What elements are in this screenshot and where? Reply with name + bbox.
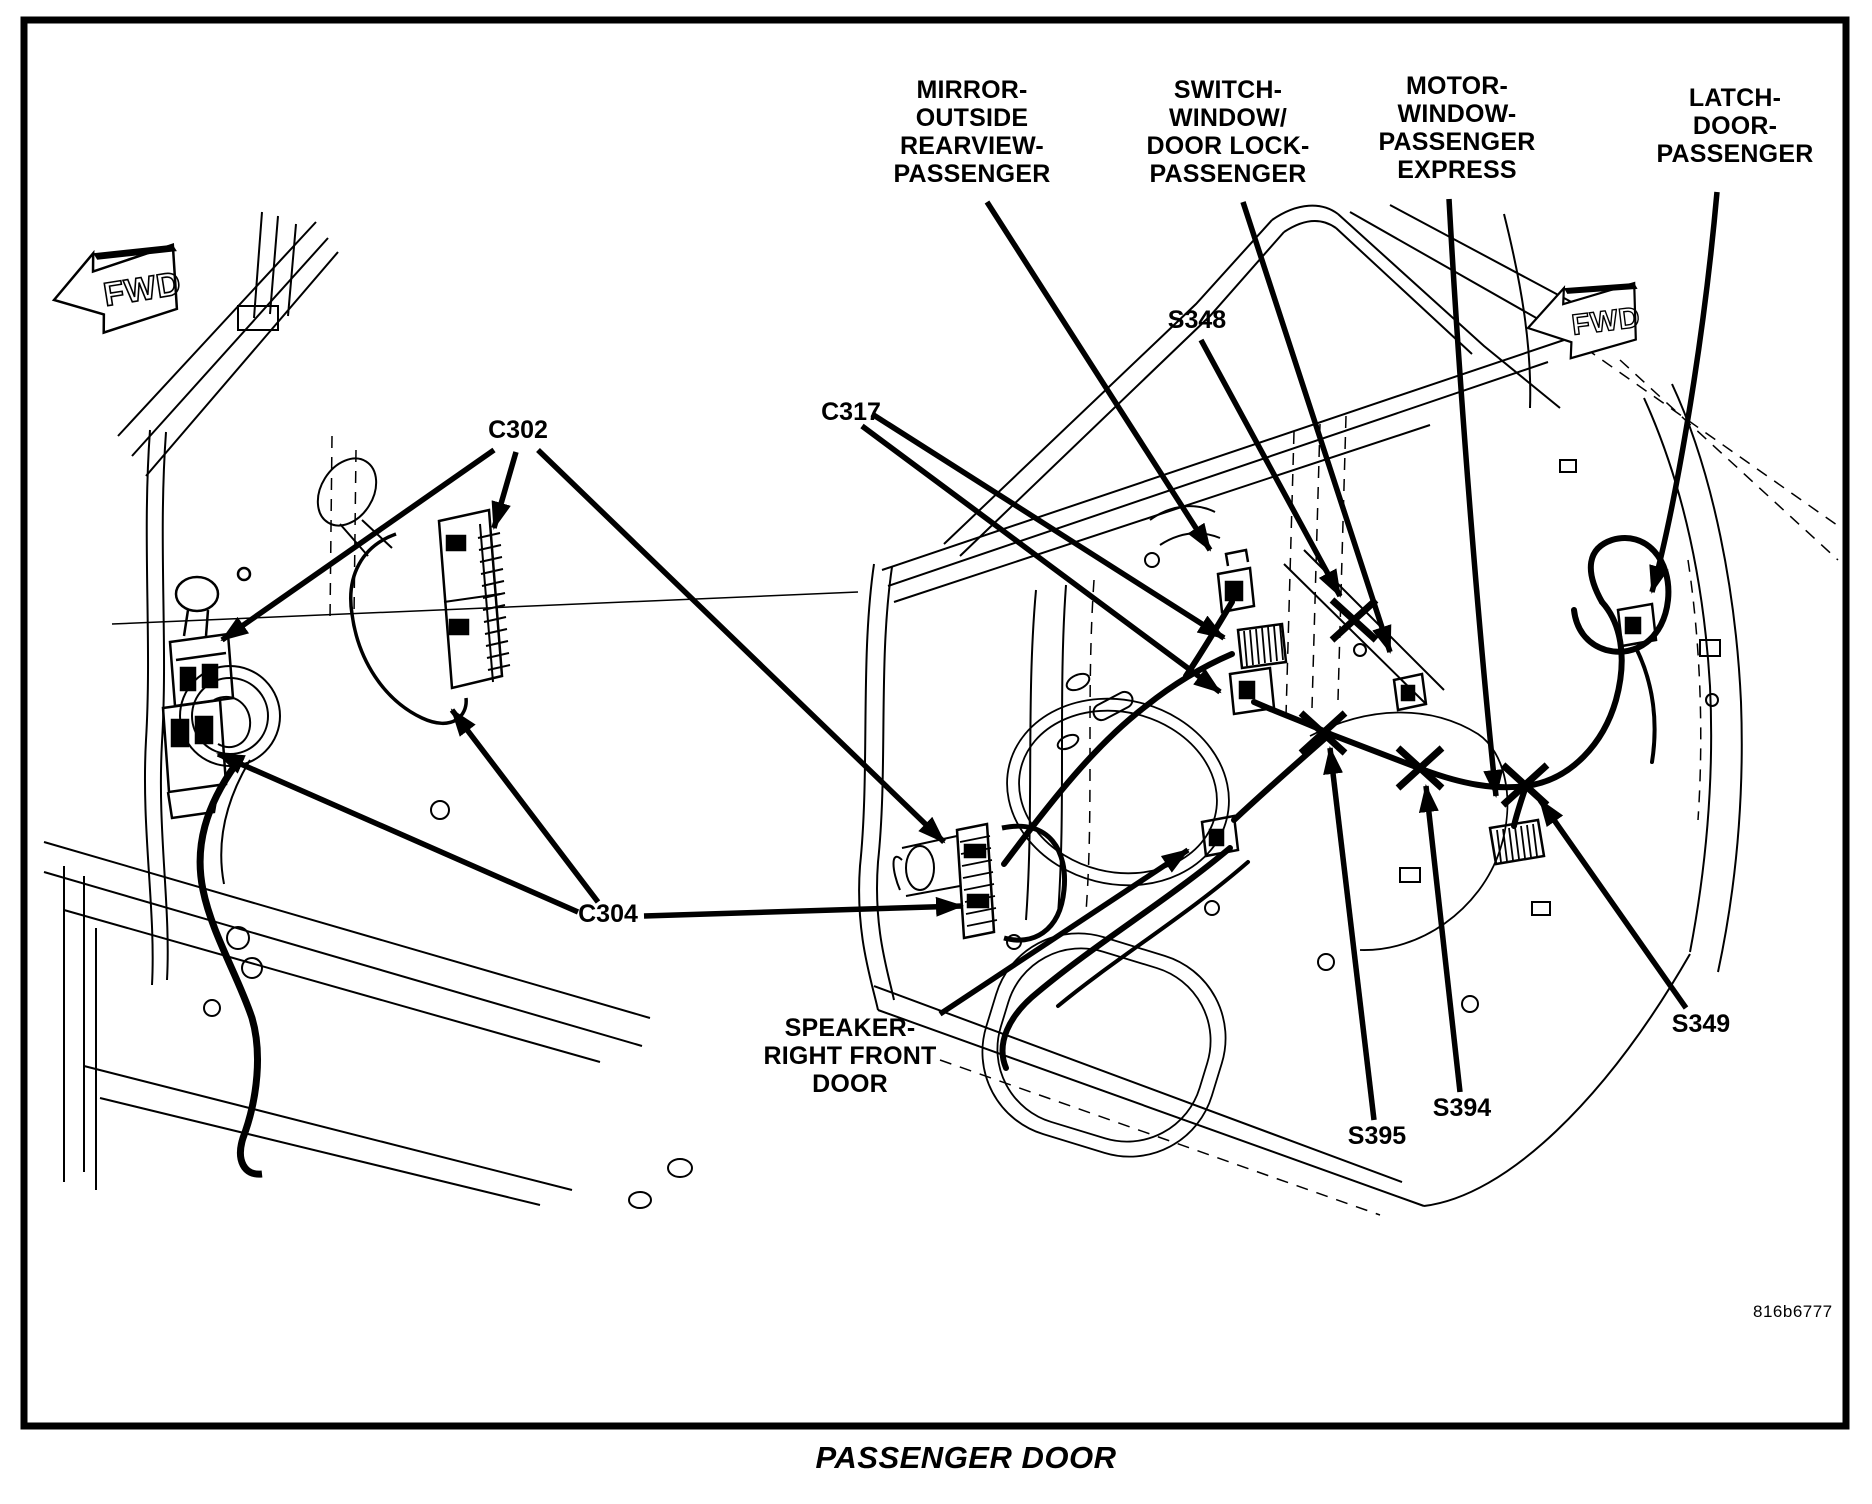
harness-speaker-branch — [1234, 734, 1330, 820]
boot-cone — [306, 448, 388, 537]
hole — [242, 958, 262, 978]
callout-line: PASSENGER — [1379, 128, 1536, 156]
leader-latch — [1652, 192, 1717, 592]
leader-c302-b — [494, 452, 516, 528]
hole — [629, 1192, 651, 1208]
pillar-line — [254, 212, 296, 318]
callout-line: PASSENGER — [1146, 160, 1309, 188]
leader-c302-c — [538, 450, 944, 842]
hole — [431, 801, 449, 819]
door-rear-edge — [1672, 384, 1742, 972]
bolt — [1064, 671, 1092, 694]
callout-line: MIRROR- — [894, 76, 1051, 104]
hole — [668, 1159, 692, 1177]
connector-label-c302: C302 — [488, 416, 548, 445]
hidden-seam — [1688, 560, 1701, 820]
pin-slot — [1240, 682, 1254, 698]
callout-latch: LATCH- DOOR- PASSENGER — [1657, 84, 1814, 168]
connector-label-c304: C304 — [578, 900, 638, 929]
harness-trunk — [1254, 602, 1622, 787]
door-bottom-edge — [874, 986, 1424, 1206]
bolt — [1055, 732, 1080, 752]
keyhole — [176, 577, 218, 611]
callout-switch: SWITCH- WINDOW/ DOOR LOCK- PASSENGER — [1146, 76, 1309, 188]
pin-slot — [1402, 686, 1414, 700]
pin-slot — [1210, 830, 1223, 845]
hole — [1354, 644, 1366, 656]
splice-x-s395 — [1301, 713, 1345, 753]
hidden-seam — [1568, 336, 1844, 560]
wire-boot — [1002, 826, 1065, 940]
connector-label-c317: C317 — [821, 398, 881, 427]
leader-s394 — [1426, 786, 1460, 1092]
leader-motor — [1449, 199, 1496, 796]
hole — [1318, 954, 1334, 970]
callout-motor: MOTOR- WINDOW- PASSENGER EXPRESS — [1379, 72, 1536, 184]
callout-line: WINDOW/ — [1146, 104, 1309, 132]
hidden-seam — [1286, 416, 1346, 716]
callout-line: SPEAKER- — [763, 1014, 936, 1042]
callout-speaker: SPEAKER- RIGHT FRONT DOOR — [763, 1014, 936, 1098]
pin-slot — [1226, 582, 1242, 600]
hole — [1462, 996, 1478, 1012]
fwd-arrow-right: FWD — [1524, 279, 1645, 363]
leader-s395 — [1330, 748, 1374, 1120]
terminal-teeth — [1244, 625, 1283, 666]
access-opening — [1002, 690, 1235, 894]
hole — [1205, 901, 1219, 915]
leader-c304-b — [452, 710, 598, 902]
bracket — [238, 306, 278, 330]
fwd-arrow-left: FWD — [48, 240, 188, 339]
wiring-diagram-art: FWD FWD — [0, 0, 1872, 1504]
harness-lower-run — [1003, 848, 1230, 1068]
screw — [238, 568, 250, 580]
inner-reinforcement — [1026, 585, 1066, 920]
leader-c304-c — [644, 906, 962, 916]
keyhole-stem — [184, 610, 208, 636]
figure-title: PASSENGER DOOR — [816, 1440, 1117, 1476]
callout-line: REARVIEW- — [894, 132, 1051, 160]
clips — [1400, 460, 1720, 915]
leader-c317-a — [872, 414, 1224, 638]
splice-x-s394 — [1398, 748, 1442, 788]
leader-s349 — [1540, 800, 1686, 1008]
splice-label-s348: S348 — [1168, 306, 1226, 335]
hole — [1706, 694, 1718, 706]
window-sash — [944, 220, 1284, 556]
door-half-connector-c302-c304 — [306, 448, 510, 724]
service-manual-figure: FWD FWD MIRROR- OUTSIDE REARVIEW- PASSEN… — [0, 0, 1872, 1504]
pin-slot — [1626, 618, 1640, 633]
hole — [227, 927, 249, 949]
hole — [204, 1000, 220, 1016]
callout-line: MOTOR- — [1379, 72, 1536, 100]
splice-label-s394: S394 — [1433, 1094, 1491, 1123]
callout-line: PASSENGER — [894, 160, 1051, 188]
connector-tab — [1226, 550, 1248, 566]
hidden-seam — [1086, 580, 1094, 912]
splice-label-s395: S395 — [1348, 1122, 1406, 1151]
callout-line: DOOR — [763, 1070, 936, 1098]
callout-line: LATCH- — [1657, 84, 1814, 112]
callout-line: EXPRESS — [1379, 156, 1536, 184]
connector-c302-body-half — [170, 634, 233, 706]
leader-lines — [218, 192, 1717, 1120]
callout-line: DOOR LOCK- — [1146, 132, 1309, 160]
funnel-mouth — [906, 846, 934, 890]
rocker-sill-lines — [44, 842, 650, 1205]
door-pass-through-connector — [894, 824, 1065, 940]
callout-line: WINDOW- — [1379, 100, 1536, 128]
harness-tail — [1636, 648, 1655, 762]
pin-slots — [447, 536, 468, 634]
body-side-connector-stack — [163, 568, 280, 1174]
leader-c304-a — [218, 754, 578, 912]
splice-label-s349: S349 — [1672, 1010, 1730, 1039]
figure-border — [24, 20, 1846, 1426]
body-pillar-drawing — [44, 212, 1380, 1215]
frame-corner — [1272, 206, 1338, 232]
callout-line: OUTSIDE — [894, 104, 1051, 132]
callout-line: RIGHT FRONT — [763, 1042, 936, 1070]
harness-wire — [200, 764, 262, 1174]
figure-id: 816b6777 — [1753, 1302, 1833, 1322]
callout-line: SWITCH- — [1146, 76, 1309, 104]
door-bottom-corner — [1424, 954, 1690, 1206]
connector-detail — [176, 653, 226, 660]
screw — [1145, 553, 1159, 567]
callout-line: DOOR- — [1657, 112, 1814, 140]
callout-mirror: MIRROR- OUTSIDE REARVIEW- PASSENGER — [894, 76, 1051, 188]
door-opening-edge — [161, 432, 168, 980]
callout-line: PASSENGER — [1657, 140, 1814, 168]
door-front-edge — [859, 564, 878, 1010]
leader-switch — [1243, 202, 1390, 652]
